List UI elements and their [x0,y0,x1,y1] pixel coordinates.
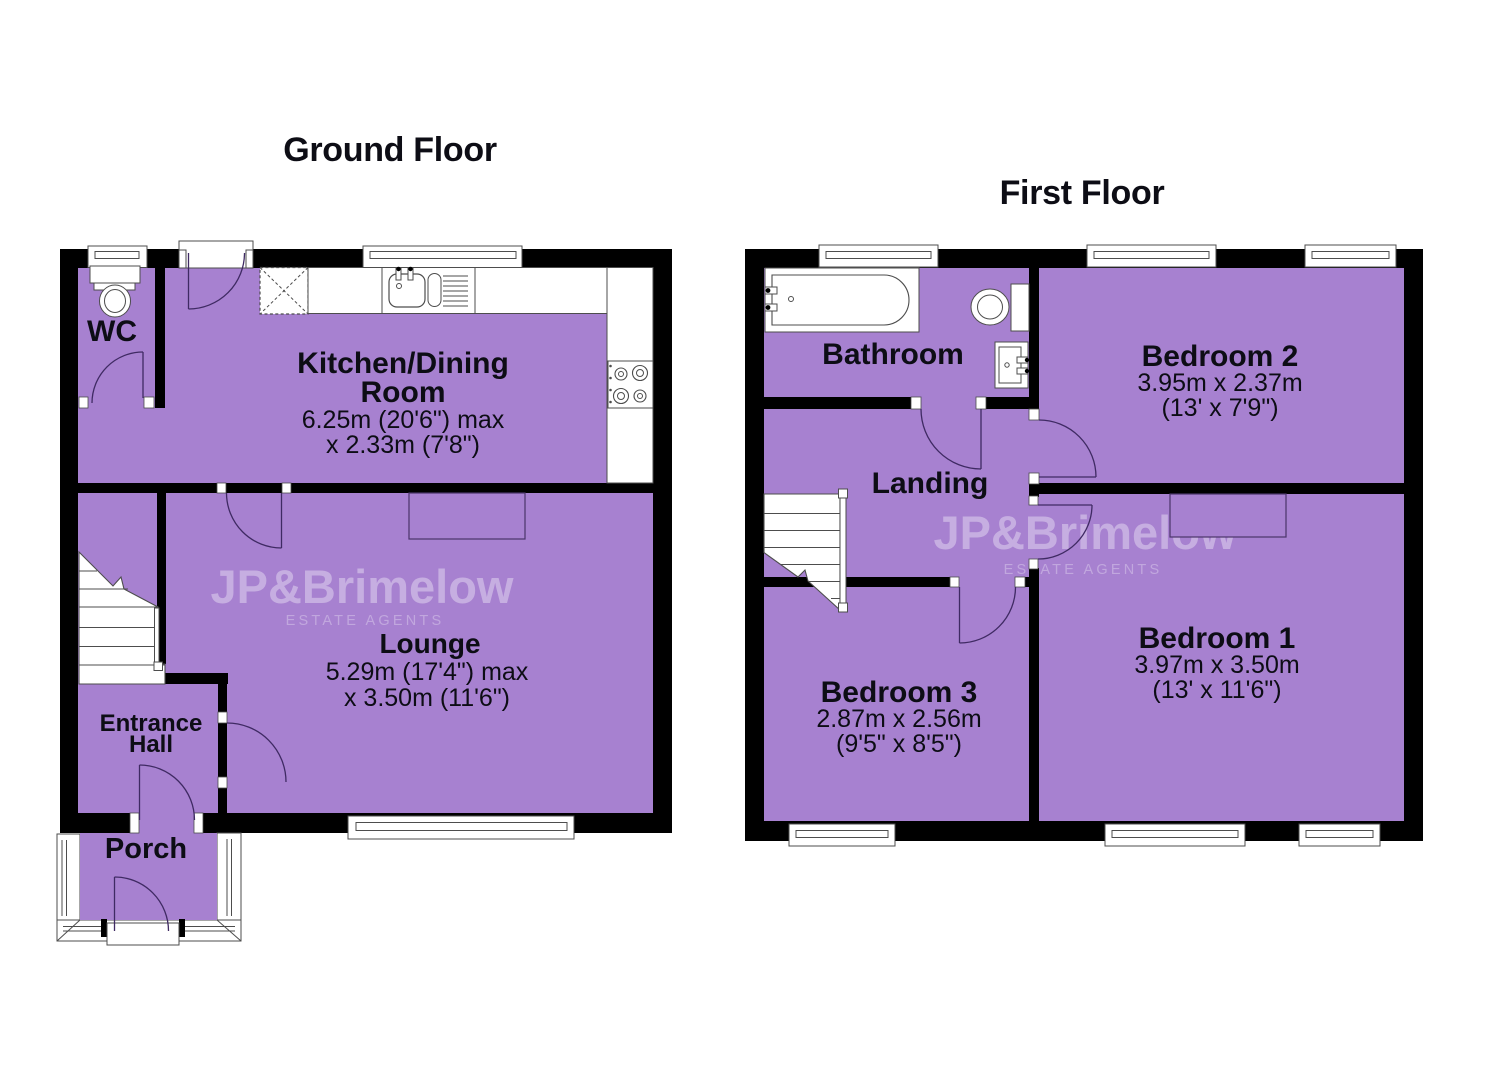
svg-text:x 3.50m (11'6"): x 3.50m (11'6") [344,684,510,712]
svg-text:(13' x 11'6"): (13' x 11'6") [1152,676,1281,704]
svg-text:Room: Room [361,376,446,409]
svg-text:(9'5" x 8'5"): (9'5" x 8'5") [836,730,962,758]
svg-text:(13' x 7'9"): (13' x 7'9") [1161,394,1278,422]
svg-text:WC: WC [87,315,137,348]
svg-text:Lounge: Lounge [379,628,480,659]
svg-text:Hall: Hall [129,731,173,758]
svg-text:3.95m x 2.37m: 3.95m x 2.37m [1137,369,1302,397]
svg-text:JP&Brimelow: JP&Brimelow [211,560,514,613]
svg-text:ESTATE AGENTS: ESTATE AGENTS [286,613,445,629]
svg-text:Landing: Landing [872,467,989,500]
svg-text:Ground Floor: Ground Floor [283,131,497,169]
svg-text:ESTATE AGENTS: ESTATE AGENTS [1004,562,1163,578]
svg-text:Porch: Porch [105,833,187,865]
svg-text:Bathroom: Bathroom [822,338,964,371]
svg-text:5.29m (17'4") max: 5.29m (17'4") max [326,658,529,686]
svg-text:First Floor: First Floor [1000,174,1165,212]
svg-text:2.87m x 2.56m: 2.87m x 2.56m [816,705,981,733]
svg-text:6.25m (20'6") max: 6.25m (20'6") max [302,406,505,434]
svg-text:x 2.33m (7'8"): x 2.33m (7'8") [326,431,480,459]
svg-text:3.97m x 3.50m: 3.97m x 3.50m [1134,651,1299,679]
